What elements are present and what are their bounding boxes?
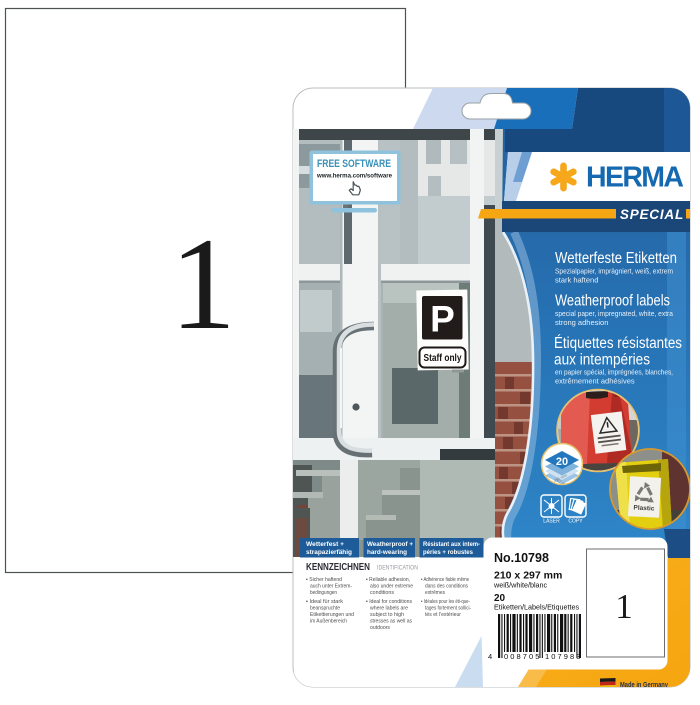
svg-text:tés et l'extérieur: tés et l'extérieur — [425, 612, 461, 618]
svg-text:péries + robustes: péries + robustes — [423, 549, 473, 556]
svg-text:FREE SOFTWARE: FREE SOFTWARE — [317, 158, 391, 170]
svg-text:auch unter Extrem-: auch unter Extrem- — [310, 584, 352, 590]
svg-text:Étiquettes résistantes: Étiquettes résistantes — [554, 335, 682, 352]
svg-text:also under extreme: also under extreme — [370, 584, 413, 590]
svg-text:Wetterfeste Etiketten: Wetterfeste Etiketten — [555, 250, 677, 267]
svg-text:extrêmement adhésives: extrêmement adhésives — [555, 377, 635, 386]
svg-text:Weatherproof labels: Weatherproof labels — [555, 293, 670, 310]
svg-text:HERMA: HERMA — [586, 162, 684, 194]
svg-text:Etikettierungen und: Etikettierungen und — [310, 612, 354, 618]
svg-text:Spezialpapier, imprägniert, we: Spezialpapier, imprägniert, weiß, extrem — [555, 267, 673, 276]
svg-text:Wetterfest +: Wetterfest + — [306, 541, 344, 548]
svg-text:conditions: conditions — [370, 590, 394, 596]
svg-text:Résistant aux intem-: Résistant aux intem- — [423, 541, 480, 548]
svg-text:aux intempéries: aux intempéries — [554, 352, 650, 369]
svg-text:LASER: LASER — [543, 519, 560, 525]
svg-text:KENNZEICHNEN: KENNZEICHNEN — [306, 562, 370, 573]
svg-text:1: 1 — [615, 587, 633, 626]
svg-text:Etiketten/Labels/Etiquettes: Etiketten/Labels/Etiquettes — [494, 603, 580, 612]
svg-text:strapazierfähig: strapazierfähig — [306, 549, 352, 556]
svg-text:special paper, impregnated, wh: special paper, impregnated, white, extra — [555, 309, 674, 318]
svg-text:weiß/white/blanc: weiß/white/blanc — [493, 581, 548, 590]
svg-text:4: 4 — [488, 652, 492, 661]
svg-text:Plastic: Plastic — [633, 504, 655, 512]
svg-text:IDENTIFICATION: IDENTIFICATION — [377, 566, 418, 572]
svg-text:No.10798: No.10798 — [494, 551, 549, 565]
svg-text:0 0 8 7 0 5: 0 0 8 7 0 5 — [504, 652, 539, 661]
svg-text:hard-wearing: hard-wearing — [367, 549, 407, 556]
svg-text:im Außenbereich: im Außenbereich — [310, 619, 347, 625]
svg-text:beanspruchte: beanspruchte — [310, 606, 340, 612]
svg-text:stresses as well as: stresses as well as — [370, 619, 412, 625]
svg-text:▪ Sicher haftend: ▪ Sicher haftend — [306, 577, 342, 583]
svg-text:outdoors: outdoors — [370, 625, 390, 631]
svg-text:dans des conditions: dans des conditions — [425, 584, 468, 590]
svg-text:20: 20 — [556, 456, 568, 468]
svg-text:Staff only: Staff only — [424, 353, 462, 364]
svg-text:▪ Idéales pour les éti-que-: ▪ Idéales pour les éti-que- — [421, 599, 470, 605]
svg-text:extrêmes: extrêmes — [425, 590, 445, 596]
svg-text:▪ Adhérence fiable même: ▪ Adhérence fiable même — [421, 577, 469, 583]
svg-text:▪ Ideal for conditions: ▪ Ideal for conditions — [366, 599, 412, 605]
svg-text:www.herma.com/software: www.herma.com/software — [316, 173, 392, 180]
svg-text:en papier spécial, imprégnées,: en papier spécial, imprégnées, blanches, — [555, 368, 673, 377]
svg-text:bedingungen: bedingungen — [310, 590, 337, 596]
svg-text:tages fortement sollici-: tages fortement sollici- — [425, 606, 471, 612]
svg-text:where labels are: where labels are — [369, 606, 408, 612]
svg-text:▪ Reliable adhesion,: ▪ Reliable adhesion, — [366, 577, 410, 583]
svg-text:SPECIAL: SPECIAL — [620, 207, 684, 222]
svg-text:1 0 7 9 8 3: 1 0 7 9 8 3 — [545, 652, 580, 661]
svg-text:1: 1 — [170, 210, 236, 357]
svg-text:COPY: COPY — [568, 519, 583, 525]
svg-text:P: P — [430, 299, 455, 340]
svg-text:subject to high: subject to high — [370, 612, 404, 618]
svg-text:stark haftend: stark haftend — [555, 276, 598, 285]
svg-text:▪ Ideal für stark: ▪ Ideal für stark — [306, 599, 343, 605]
svg-text:strong adhesion: strong adhesion — [555, 318, 608, 327]
svg-text:Weatherproof +: Weatherproof + — [367, 541, 413, 548]
